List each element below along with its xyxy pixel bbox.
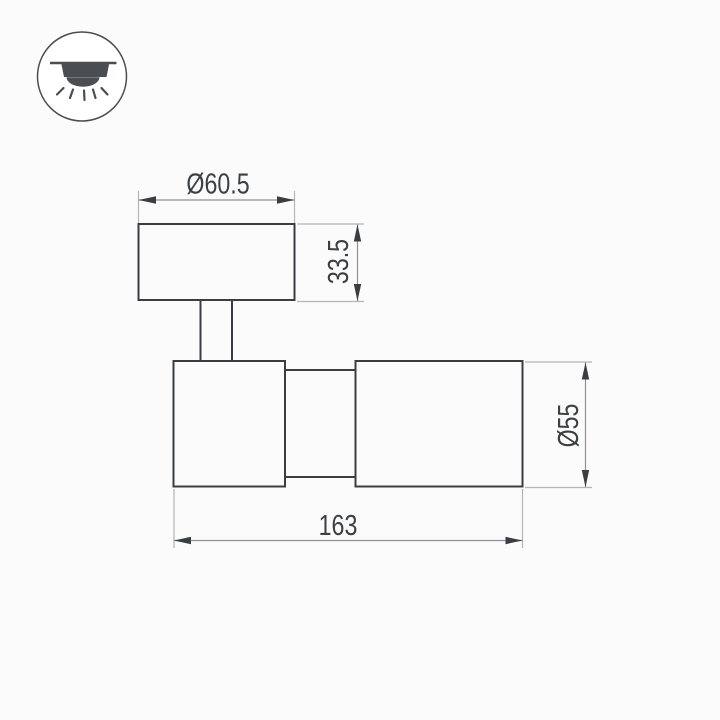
body-rear-outline — [174, 361, 286, 487]
arrowhead-right — [277, 196, 295, 203]
technical-drawing-page: Ø60.5 33.5 Ø55 163 — [0, 0, 720, 720]
dimension-top-diameter: Ø60.5 — [139, 167, 295, 223]
dimension-total-length: 163 — [174, 489, 523, 548]
dimension-label-total-length: 163 — [319, 508, 358, 541]
icon-recessed-housing — [61, 62, 110, 77]
arrowhead-right — [506, 537, 523, 544]
body-front-outline — [356, 361, 523, 487]
arrowhead-top — [354, 225, 361, 242]
dimension-label-top-diameter: Ø60.5 — [186, 167, 249, 200]
ceiling-downlight-icon — [38, 32, 127, 121]
fixture-dimension-drawing: Ø60.5 33.5 Ø55 163 — [0, 0, 720, 720]
dimension-label-base-height: 33.5 — [321, 239, 354, 284]
dimension-body-diameter: Ø55 — [525, 362, 592, 488]
body-mid-outline — [285, 370, 356, 477]
arrowhead-bottom — [354, 284, 361, 301]
mounting-base-outline — [139, 224, 295, 300]
arrowhead-top — [582, 363, 589, 380]
arrowhead-left — [174, 537, 191, 544]
stem-outline — [201, 300, 233, 361]
arrowhead-bottom — [582, 470, 589, 487]
dimension-base-height: 33.5 — [297, 224, 364, 302]
arrowhead-left — [139, 196, 157, 203]
dimension-label-body-diameter: Ø55 — [551, 404, 584, 448]
